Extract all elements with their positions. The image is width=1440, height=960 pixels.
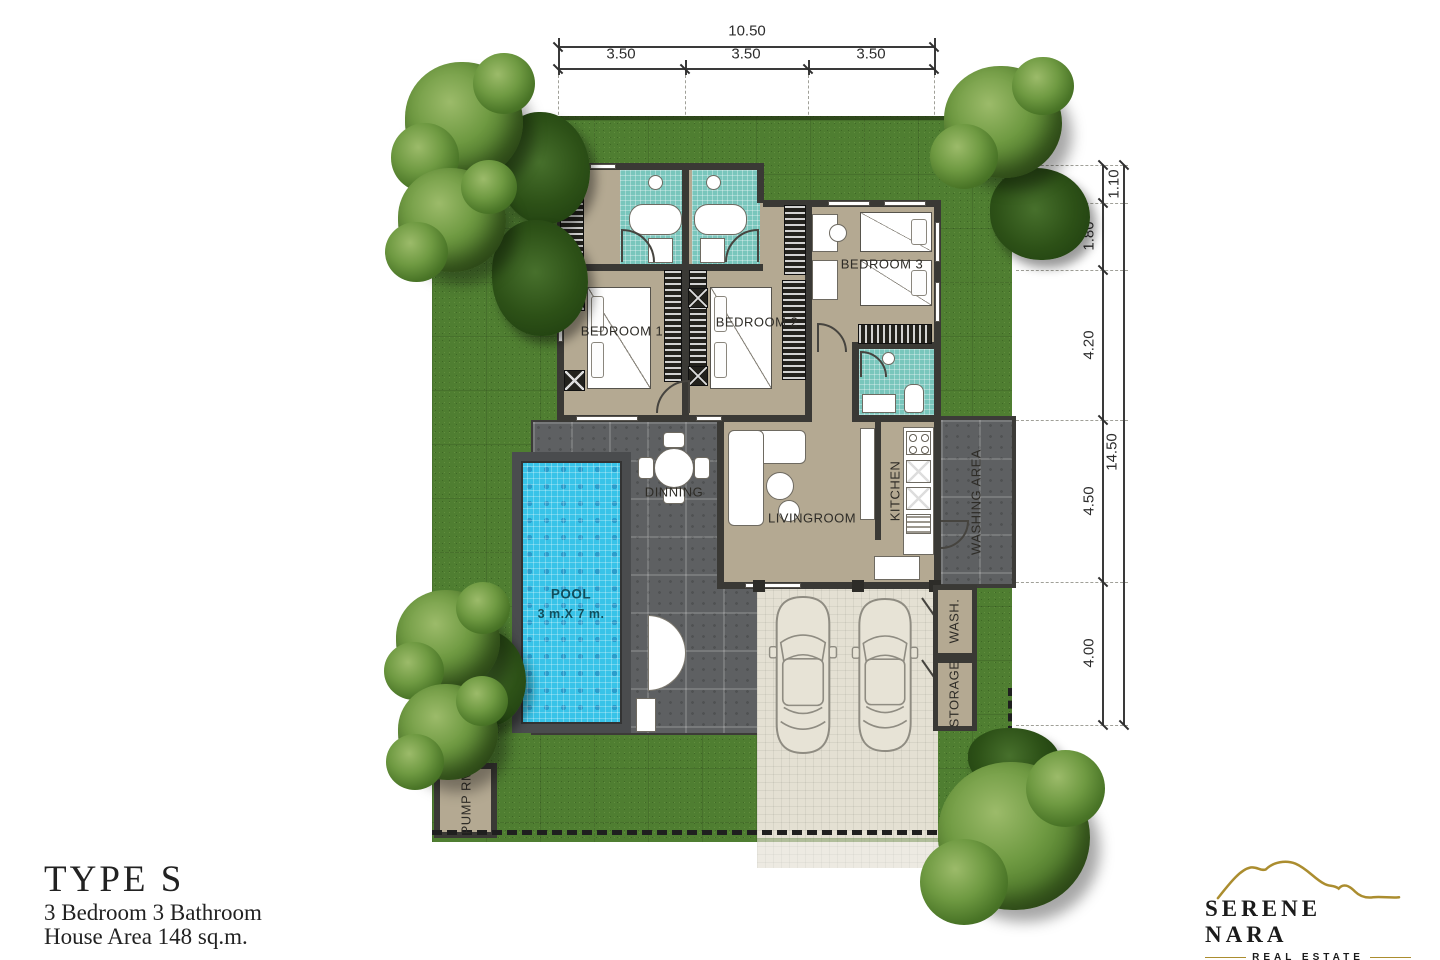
logo-tagline: REAL ESTATE — [1246, 952, 1370, 960]
room-label-dining: DINNING — [645, 485, 703, 500]
pool-size-label: 3 m.X 7 m. — [538, 607, 605, 621]
plan-subtitle-area: House Area 148 sq.m. — [44, 925, 262, 949]
tree-icon — [944, 66, 1062, 178]
room-label-pool: POOL — [551, 587, 591, 602]
room-label-bedroom-2: BEDROOM 2 — [716, 315, 799, 330]
boundary-line — [432, 830, 1012, 835]
door-arc — [941, 521, 968, 548]
logo-line — [1370, 957, 1411, 959]
room-label-kitchen: KITCHEN — [888, 461, 903, 522]
tree-icon — [405, 62, 523, 180]
plan-subtitle-bedrooms: 3 Bedroom 3 Bathroom — [44, 901, 262, 925]
room-label-bedroom-1: BEDROOM 1 — [581, 324, 664, 339]
plan-type-title: TYPE S — [44, 858, 262, 901]
door-arc — [861, 352, 886, 377]
door-arcs — [0, 0, 1440, 960]
door-arc — [818, 324, 846, 352]
title-block: TYPE S 3 Bedroom 3 Bathroom House Area 1… — [44, 858, 262, 949]
tree-icon — [398, 684, 498, 780]
room-label-storage: STORAGE — [947, 661, 962, 728]
door-arc — [726, 230, 758, 262]
room-label-living: LIVINGROOM — [768, 511, 856, 526]
company-logo: SERENE NARA REAL ESTATE — [1205, 856, 1411, 960]
logo-name: SERENE NARA — [1205, 896, 1411, 948]
logo-line — [1205, 957, 1246, 959]
floor-plan-canvas: 10.50 3.50 3.50 3.50 1.10 1.80 4.20 4.50… — [0, 0, 1440, 960]
tree-icon — [396, 590, 500, 690]
tree-icon — [938, 762, 1090, 910]
logo-tagline-row: REAL ESTATE — [1205, 952, 1411, 960]
room-label-bedroom-3: BEDROOM 3 — [841, 257, 924, 272]
room-label-washing-area: WASHING AREA — [969, 449, 984, 555]
tree-icon — [398, 168, 506, 272]
door-arc — [657, 381, 689, 413]
door-arc — [622, 230, 654, 262]
room-label-wash: WASH. — [947, 599, 962, 644]
